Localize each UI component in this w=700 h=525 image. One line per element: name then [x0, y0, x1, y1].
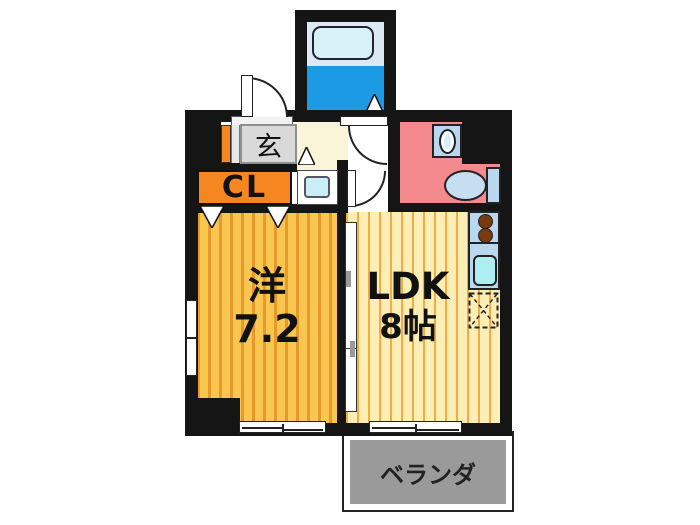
stove-burner-icon	[478, 228, 493, 243]
shoe-cabinet	[221, 125, 231, 163]
western-room-label: 洋 7.2	[197, 258, 337, 358]
veranda-deck: ベランダ	[350, 440, 506, 504]
window-icon	[186, 300, 197, 376]
window-sash-line	[187, 337, 196, 339]
ldk-type: LDK	[367, 266, 450, 307]
ldk-door-icon	[347, 170, 356, 207]
entrance-label: 玄	[255, 125, 282, 164]
western-room-size: 7.2	[233, 308, 300, 351]
kitchen-counter	[468, 211, 500, 290]
stove-burner-icon	[478, 214, 493, 229]
door-jamb	[231, 125, 240, 163]
ldk-size: 8帖	[379, 308, 437, 346]
kitchen-sink-icon	[473, 255, 497, 286]
front-door-swing	[247, 77, 288, 117]
toilet-icon	[444, 170, 487, 201]
window-sash-line	[282, 429, 323, 431]
entrance-area: 玄	[240, 124, 297, 164]
washbasin-icon	[432, 124, 462, 158]
wall-bottom-left-chunk	[185, 398, 240, 436]
wall-right	[500, 110, 512, 436]
wall-left-entrance	[185, 110, 221, 166]
wall-hall-washroom	[388, 110, 400, 212]
wall-pipe-space	[462, 122, 500, 164]
window-icon	[239, 421, 326, 433]
window-center-tick	[282, 424, 284, 432]
window-center-tick	[415, 424, 417, 432]
veranda-label: ベランダ	[380, 455, 476, 490]
closet-label: CL	[222, 170, 267, 205]
closet-door-triangle-icon	[266, 206, 290, 228]
ldk-label: LDK 8帖	[346, 260, 470, 352]
toilet-tank	[486, 167, 501, 204]
washing-machine-pan-icon	[297, 170, 338, 205]
western-room-type: 洋	[248, 265, 286, 308]
veranda: ベランダ	[342, 431, 514, 512]
washing-machine-pan-basin	[304, 176, 330, 198]
bathtub-icon	[312, 26, 374, 60]
front-door-icon	[241, 75, 253, 117]
refrigerator-space-icon	[468, 292, 499, 329]
closet-box: CL	[197, 170, 292, 205]
washbasin-bowl	[439, 129, 456, 154]
window-sash-line	[372, 427, 417, 429]
closet-door-triangle-icon	[200, 206, 224, 228]
entrance-step-triangle-icon	[298, 147, 315, 165]
bathroom-door-icon	[340, 116, 388, 126]
window-icon	[369, 421, 462, 433]
floor-plan: ベランダ 玄 CL	[0, 0, 700, 525]
window-sash-line	[415, 429, 459, 431]
window-sash-line	[242, 427, 284, 429]
